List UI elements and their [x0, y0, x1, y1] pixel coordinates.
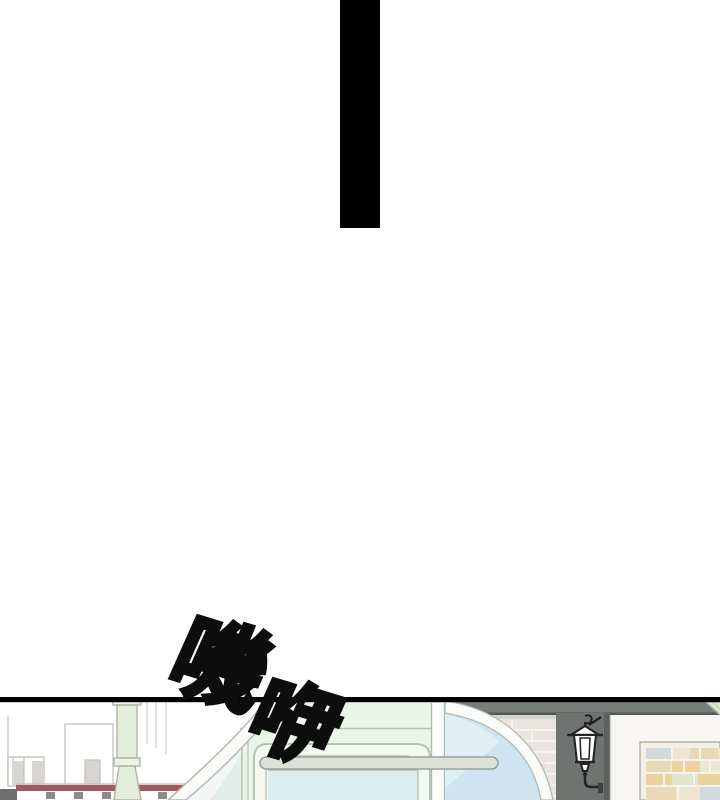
lantern-glass: [580, 738, 590, 759]
street-scene-illustration: [0, 697, 720, 800]
street-pole: [113, 700, 141, 800]
panel-gutter-bar: [340, 0, 380, 228]
panel-border-line: [0, 697, 720, 702]
comic-page: 嘰 咿: [0, 0, 720, 800]
lantern-finial: [581, 764, 589, 771]
framed-brick-wall: [640, 742, 720, 800]
wall-edge-lines: [147, 702, 166, 754]
